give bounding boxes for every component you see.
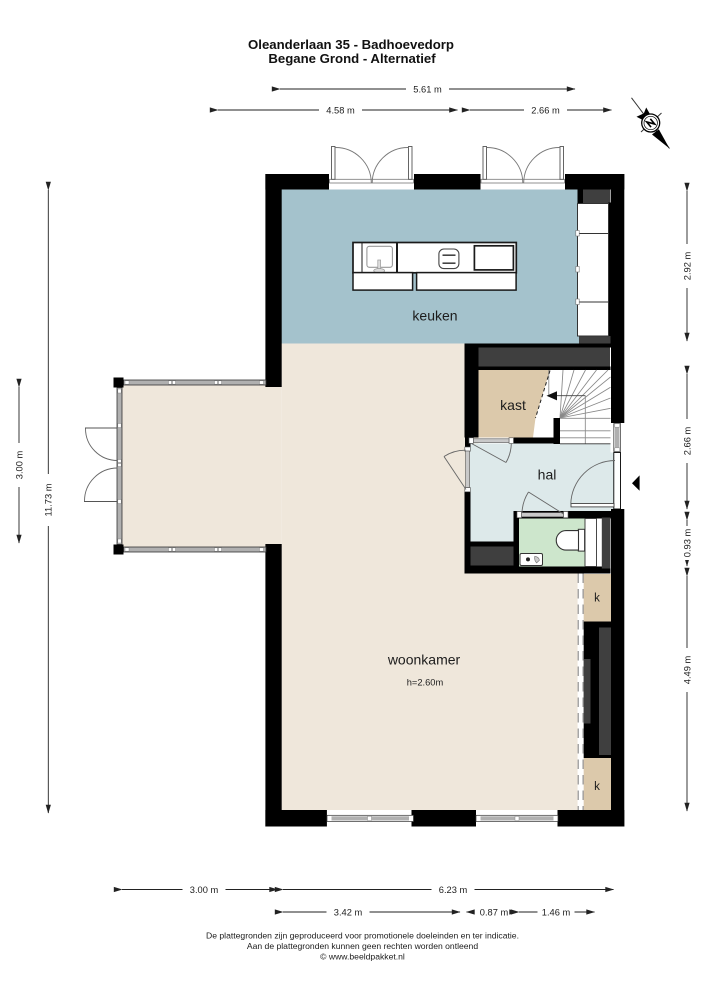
- svg-text:11.73 m: 11.73 m: [44, 483, 54, 516]
- svg-text:3.00 m: 3.00 m: [190, 885, 219, 895]
- svg-text:3.00 m: 3.00 m: [14, 451, 24, 480]
- svg-text:Aan de plattegronden kunnen ge: Aan de plattegronden kunnen geen rechten…: [247, 941, 478, 951]
- svg-text:h=2.60m: h=2.60m: [407, 678, 444, 688]
- svg-text:Begane Grond - Alternatief: Begane Grond - Alternatief: [268, 51, 436, 66]
- svg-text:Oleanderlaan 35 - Badhoevedorp: Oleanderlaan 35 - Badhoevedorp: [248, 37, 454, 52]
- svg-text:0.87 m: 0.87 m: [480, 908, 509, 918]
- svg-text:kast: kast: [500, 397, 526, 413]
- svg-text:De plattegronden zijn geproduc: De plattegronden zijn geproduceerd voor …: [206, 931, 519, 941]
- svg-text:2.66 m: 2.66 m: [682, 427, 692, 456]
- svg-text:4.58 m: 4.58 m: [326, 106, 355, 116]
- svg-text:4.49 m: 4.49 m: [682, 656, 692, 685]
- svg-text:6.23 m: 6.23 m: [439, 885, 468, 895]
- svg-text:3.42 m: 3.42 m: [334, 908, 363, 918]
- svg-text:1.46 m: 1.46 m: [542, 908, 571, 918]
- svg-text:k: k: [594, 781, 600, 793]
- svg-text:keuken: keuken: [412, 308, 457, 324]
- svg-text:k: k: [594, 593, 600, 605]
- svg-text:hal: hal: [538, 467, 557, 483]
- svg-text:0.93 m: 0.93 m: [682, 529, 692, 558]
- svg-text:2.66 m: 2.66 m: [531, 106, 560, 116]
- svg-text:woonkamer: woonkamer: [387, 652, 461, 668]
- svg-text:2.92 m: 2.92 m: [682, 252, 692, 281]
- svg-text:5.61 m: 5.61 m: [413, 85, 442, 95]
- svg-text:© www.beeldpakket.nl: © www.beeldpakket.nl: [320, 952, 405, 962]
